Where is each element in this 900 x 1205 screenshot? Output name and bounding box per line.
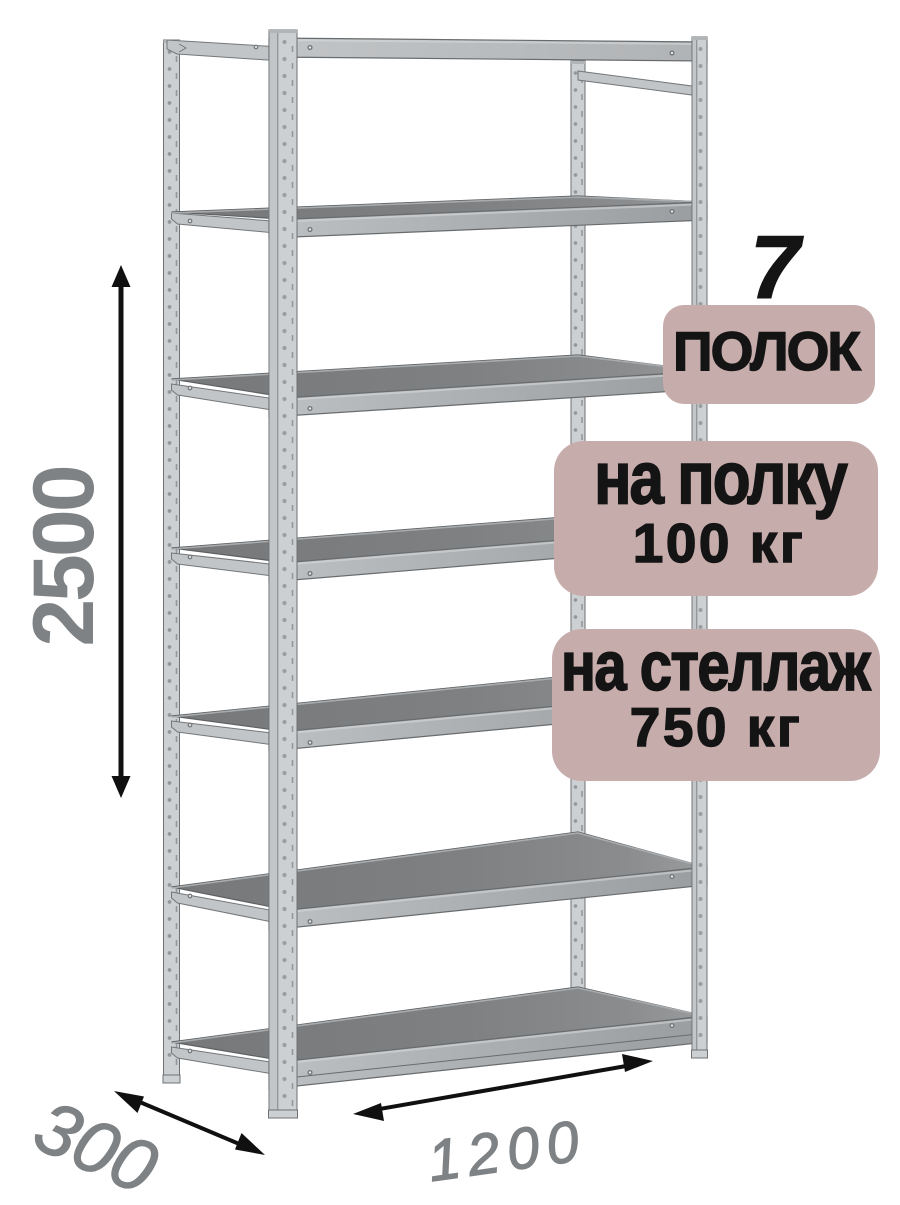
svg-text:на стеллаж: на стеллаж (561, 627, 871, 705)
svg-text:на полку: на полку (594, 436, 848, 520)
svg-text:2500: 2500 (16, 467, 112, 646)
svg-text:750 кг: 750 кг (630, 696, 802, 758)
svg-text:100 кг: 100 кг (633, 512, 805, 574)
svg-text:ПОЛОК: ПОЛОК (673, 320, 861, 382)
svg-text:7: 7 (750, 217, 803, 317)
